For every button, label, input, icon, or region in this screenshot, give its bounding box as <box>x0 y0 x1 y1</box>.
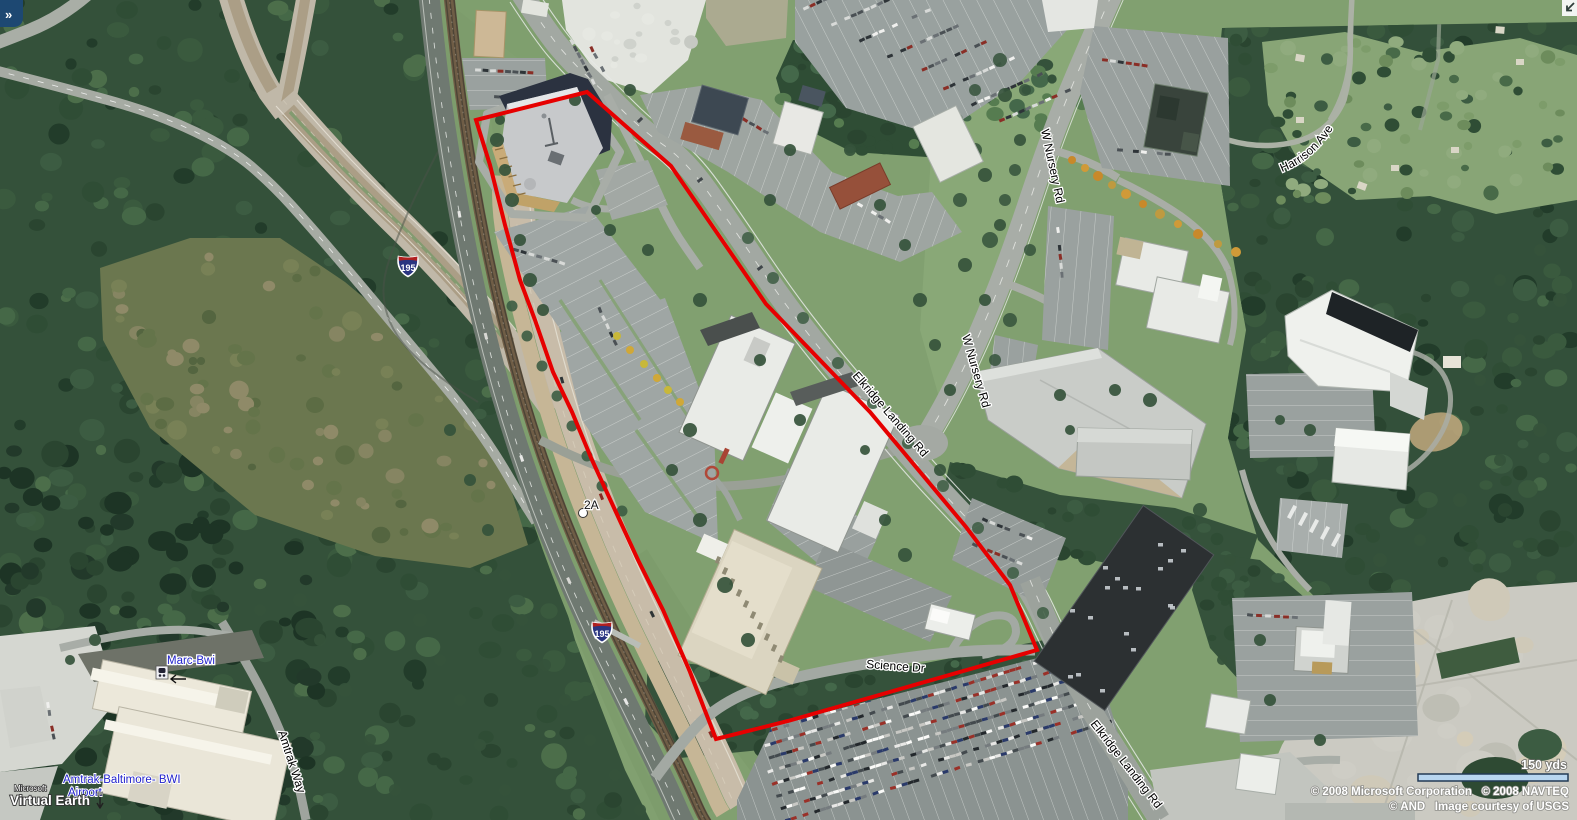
svg-text:™: ™ <box>96 792 103 799</box>
svg-text:Virtual Earth: Virtual Earth <box>10 793 90 808</box>
svg-text:150 yds: 150 yds <box>1521 758 1567 772</box>
svg-text:© AND Image courtesy of USGS: © AND Image courtesy of USGS <box>1389 801 1569 813</box>
svg-text:195: 195 <box>594 629 609 639</box>
svg-text:»: » <box>5 7 12 22</box>
svg-text:Marc-Bwi: Marc-Bwi <box>167 655 215 667</box>
svg-text:Amtrak-Baltimore- BWI: Amtrak-Baltimore- BWI <box>63 774 181 786</box>
svg-text:Microsoft: Microsoft <box>14 784 47 793</box>
svg-text:© 2008 Microsoft Corporation: © 2008 Microsoft Corporation © 2008 NAVT… <box>1311 786 1569 798</box>
svg-text:2A: 2A <box>584 498 599 512</box>
svg-text:195: 195 <box>400 263 415 273</box>
